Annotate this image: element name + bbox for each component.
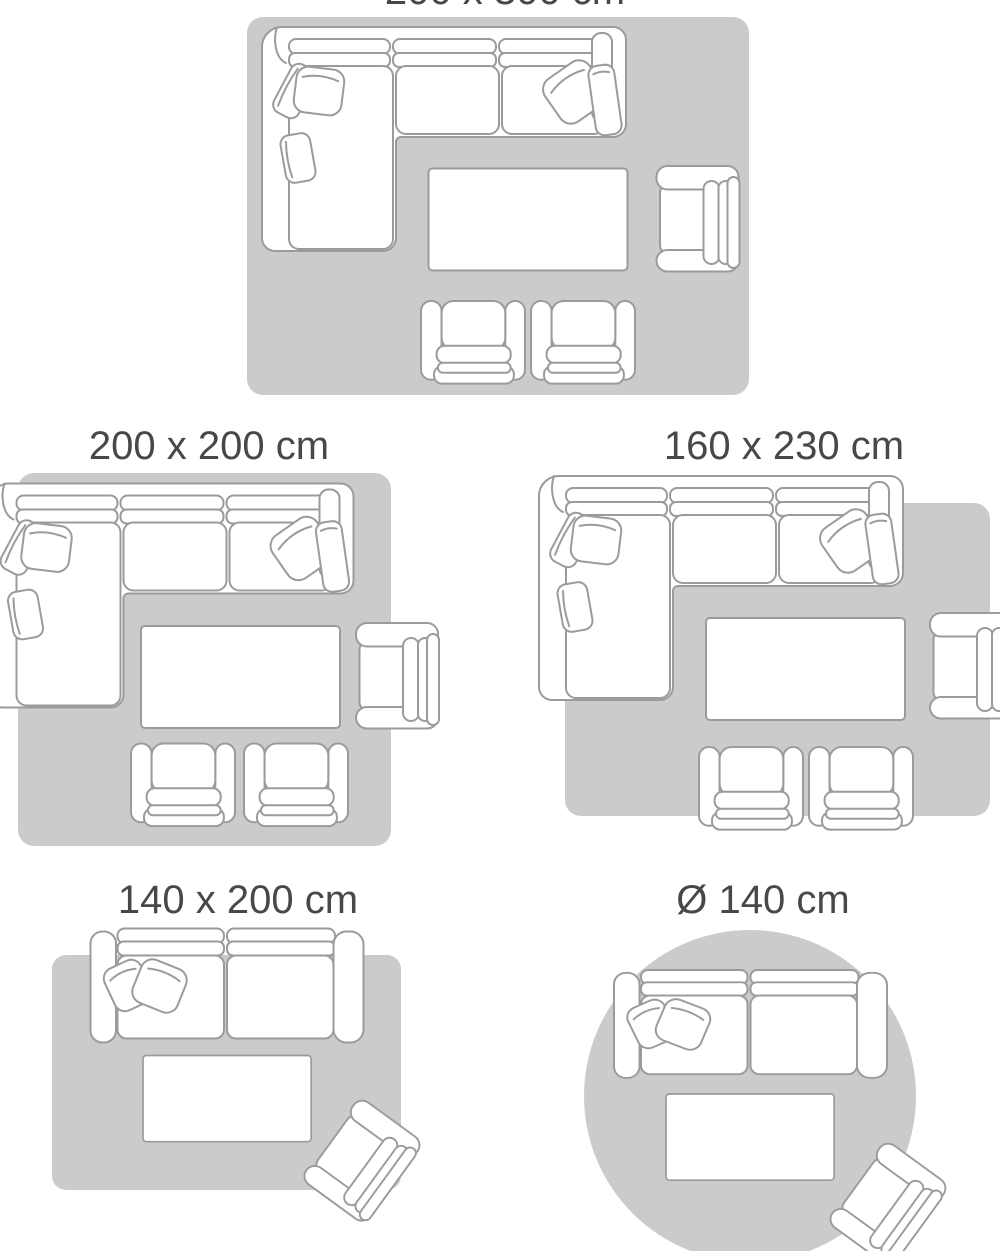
svg-text:200 x 300 cm: 200 x 300 cm [385,0,625,13]
svg-text:160 x 230 cm: 160 x 230 cm [664,424,904,468]
svg-text:200 x 200 cm: 200 x 200 cm [89,424,329,468]
svg-text:140 x 200 cm: 140 x 200 cm [118,878,358,922]
svg-text:Ø 140 cm: Ø 140 cm [676,878,849,922]
